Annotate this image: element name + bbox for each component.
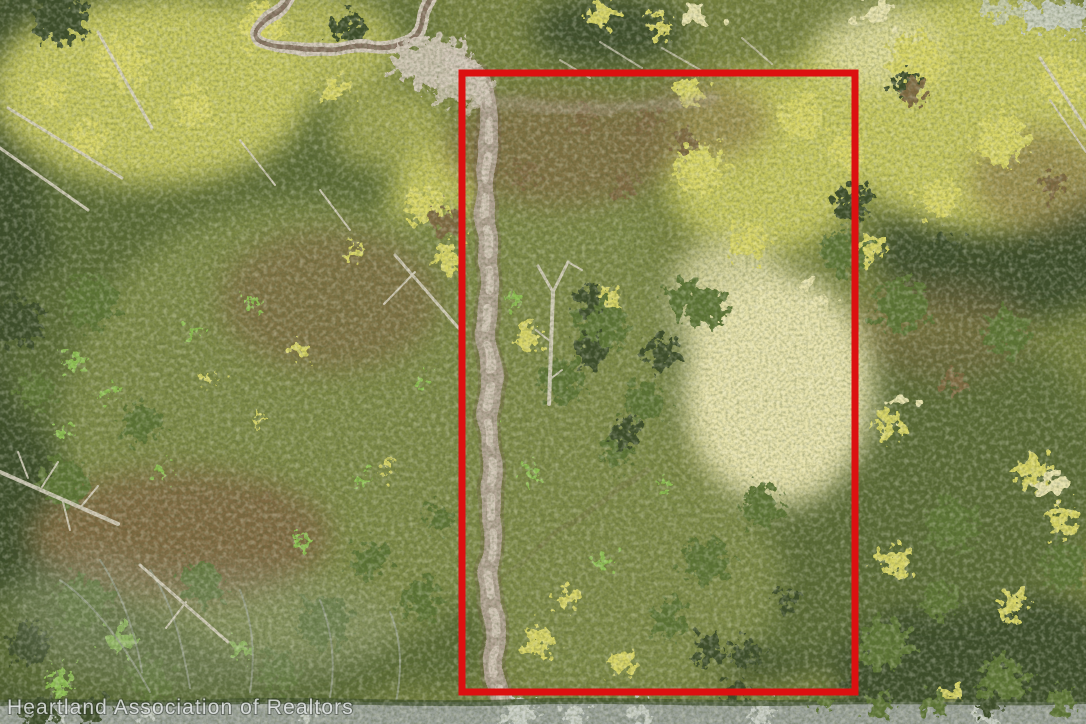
aerial-photo: Heartland Association of Realtors [0,0,1086,724]
photo-canvas: Heartland Association of Realtors [0,0,1086,724]
watermark: Heartland Association of Realtors [7,696,354,719]
grain-light [0,0,1086,724]
